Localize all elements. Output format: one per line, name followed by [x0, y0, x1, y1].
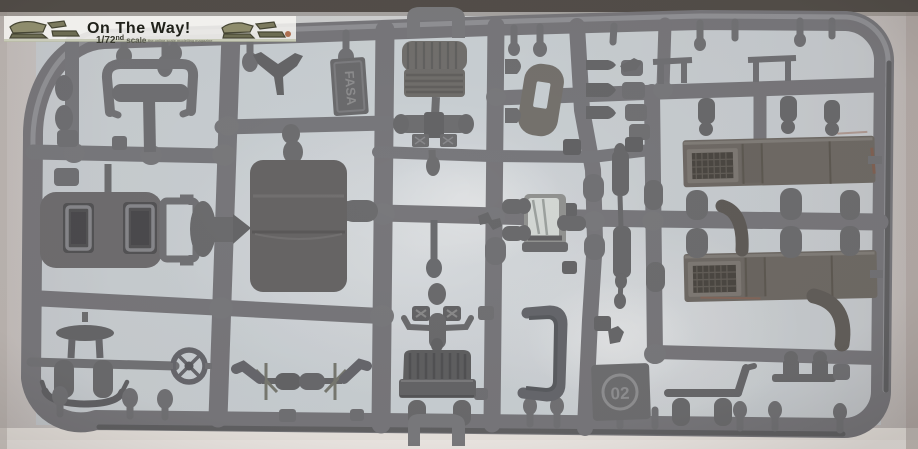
svg-text:the online scale modelling mag: the online scale modelling magazine	[148, 38, 213, 43]
